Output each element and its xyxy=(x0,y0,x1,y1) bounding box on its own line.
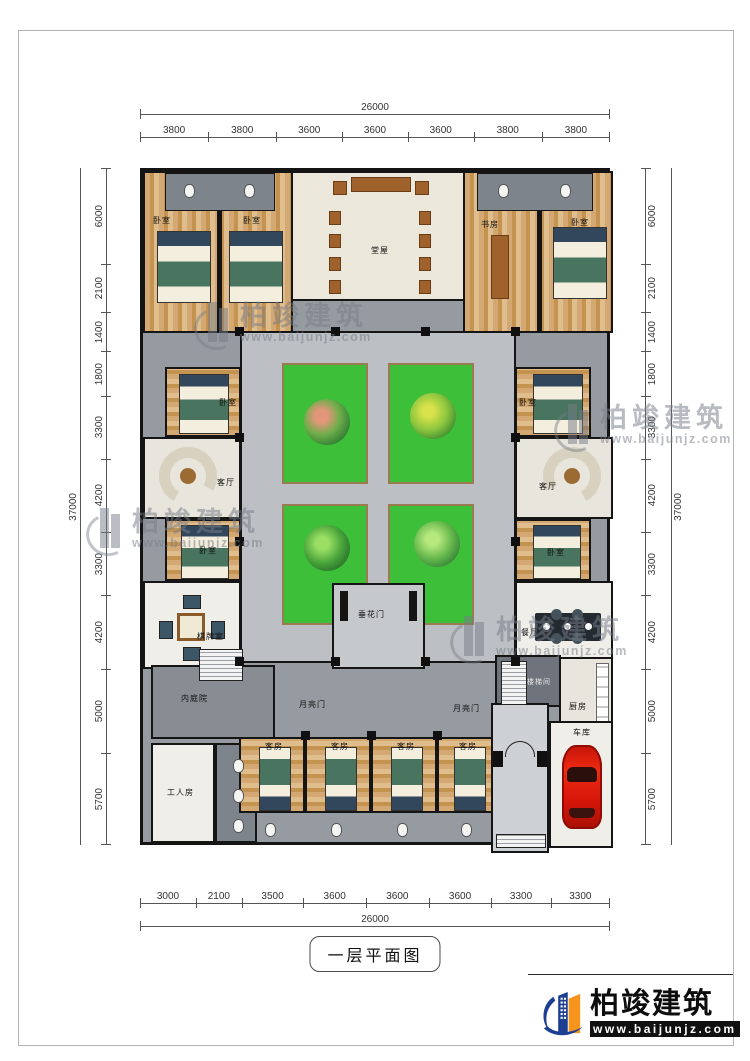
room-guest-3: 客房 xyxy=(371,737,437,813)
room-label: 月亮门 xyxy=(453,703,480,714)
dimension-bottom: 3000 2100 3500 3600 3600 3600 3300 3300 … xyxy=(140,886,610,927)
dim-segment: 5700 xyxy=(645,753,671,845)
dim-segment: 3300 xyxy=(81,532,107,595)
column xyxy=(331,657,340,666)
room-label: 卧室 xyxy=(571,217,589,228)
column xyxy=(421,657,430,666)
toilet-icon xyxy=(244,184,255,198)
floor-plan-sheet: 26000 3800 3800 3600 3600 3600 3800 3800… xyxy=(0,0,750,1061)
flower-gate: 垂花门 xyxy=(332,583,425,669)
dim-segment: 4200 xyxy=(81,459,107,533)
dim-top-total: 26000 xyxy=(140,97,610,115)
room-label: 楼梯间 xyxy=(527,677,551,687)
bed-icon xyxy=(325,747,357,811)
room-label: 卧室 xyxy=(219,397,237,408)
dim-segment: 3300 xyxy=(491,886,550,903)
dim-bottom-segments: 3000 2100 3500 3600 3600 3600 3300 3300 xyxy=(140,886,610,904)
bathroom xyxy=(165,173,275,211)
drawing-title: 一层平面图 xyxy=(309,936,440,972)
dim-segment: 3800 xyxy=(140,120,208,137)
bed-icon xyxy=(391,747,423,811)
room-living-left: 客厅 xyxy=(143,437,241,519)
room-label: 卧室 xyxy=(153,215,171,226)
gate-column xyxy=(340,591,348,621)
dim-segment: 1800 xyxy=(81,351,107,395)
dim-segment: 3600 xyxy=(408,120,474,137)
column xyxy=(433,731,442,740)
dim-segment: 3600 xyxy=(342,120,408,137)
chair-icon xyxy=(183,595,201,609)
room-label: 月亮门 xyxy=(299,699,326,710)
bed-icon xyxy=(553,227,607,299)
gate-column xyxy=(409,591,417,621)
room-bedrooms-top-left: 卧室 卧室 xyxy=(143,171,293,333)
dining-table-icon xyxy=(535,613,601,641)
dim-segment: 3800 xyxy=(542,120,610,137)
tree-icon xyxy=(410,393,456,439)
dim-segment: 3300 xyxy=(645,532,671,595)
toilet-icon xyxy=(331,823,342,837)
room-main-hall: 堂屋 xyxy=(291,171,465,301)
column xyxy=(301,731,310,740)
room-bedroom-left-upper: 卧室 xyxy=(165,367,241,437)
column xyxy=(235,327,244,336)
room-label: 内庭院 xyxy=(181,693,208,704)
room-label: 堂屋 xyxy=(371,245,389,256)
room-label: 卧室 xyxy=(199,545,217,556)
dim-segment: 6000 xyxy=(81,168,107,264)
room-bedroom-left-lower: 卧室 xyxy=(165,519,241,581)
dim-segment: 1800 xyxy=(645,351,671,395)
logo-brand-text: 柏竣建筑 xyxy=(590,989,740,1019)
room-label: 卧室 xyxy=(519,397,537,408)
dim-segment: 3600 xyxy=(276,120,342,137)
dimension-left: 37000 6000 2100 1400 1800 3300 4200 3300… xyxy=(58,168,107,845)
dim-segment: 3800 xyxy=(208,120,276,137)
dim-segment: 5000 xyxy=(645,669,671,753)
dim-segment: 4200 xyxy=(81,595,107,669)
logo-url-text: www.baijunjz.com xyxy=(590,1021,740,1037)
chair-row-icon xyxy=(419,211,431,294)
column xyxy=(367,731,376,740)
gate-post xyxy=(537,751,547,767)
room-bedroom-right-upper: 卧室 xyxy=(515,367,591,437)
room-label: 车库 xyxy=(573,727,591,738)
dim-segment: 6000 xyxy=(645,168,671,264)
door-leaf-icon xyxy=(519,741,535,757)
sofa-icon xyxy=(152,440,223,511)
dim-segment: 5700 xyxy=(81,753,107,845)
toilet-icon xyxy=(233,789,244,803)
toilet-icon xyxy=(498,184,509,198)
dimension-right: 6000 2100 1400 1800 3300 4200 3300 4200 … xyxy=(645,168,694,845)
room-label: 卧室 xyxy=(243,215,261,226)
floor-plan: 卧室 卧室 堂屋 书房 卧室 卧室 xyxy=(140,168,610,845)
gate-post xyxy=(493,751,503,767)
dim-bottom-total: 26000 xyxy=(140,909,610,927)
room-guest-1: 客房 xyxy=(239,737,305,813)
toilet-icon xyxy=(233,759,244,773)
entry-steps-icon xyxy=(496,834,546,848)
column xyxy=(511,327,520,336)
dim-segment: 3600 xyxy=(366,886,429,903)
dim-right-total: 37000 xyxy=(671,168,694,845)
wall xyxy=(537,211,542,333)
tree-icon xyxy=(304,399,350,445)
room-label: 客厅 xyxy=(539,481,557,492)
altar-table-icon xyxy=(351,177,411,192)
room-garage: 车库 xyxy=(549,721,613,848)
room-label: 厨房 xyxy=(569,701,587,712)
dim-segment: 3600 xyxy=(429,886,492,903)
dim-segment: 5000 xyxy=(81,669,107,753)
dim-left-segments: 6000 2100 1400 1800 3300 4200 3300 4200 … xyxy=(81,168,107,845)
bed-icon xyxy=(157,231,211,303)
dim-segment: 1400 xyxy=(645,312,671,351)
toilet-icon xyxy=(184,184,195,198)
room-stairwell: 楼梯间 xyxy=(495,655,561,707)
sofa-icon xyxy=(536,440,607,511)
dim-right-segments: 6000 2100 1400 1800 3300 4200 3300 4200 … xyxy=(645,168,671,845)
bed-icon xyxy=(259,747,291,811)
column xyxy=(235,657,244,666)
room-worker: 工人房 xyxy=(151,743,215,843)
logo-mark-icon xyxy=(540,988,584,1038)
room-label: 工人房 xyxy=(167,787,194,798)
bed-icon xyxy=(229,231,283,303)
toilet-icon xyxy=(461,823,472,837)
bathroom xyxy=(477,173,593,211)
toilet-icon xyxy=(265,823,276,837)
room-living-right: 客厅 xyxy=(515,437,613,519)
room-label: 客房 xyxy=(331,741,349,752)
chair-row-icon xyxy=(329,211,341,294)
dim-top-segments: 3800 3800 3600 3600 3600 3800 3800 xyxy=(140,120,610,138)
room-label: 餐厅 xyxy=(521,627,539,638)
chair-icon xyxy=(415,181,429,195)
dim-segment: 1400 xyxy=(81,312,107,351)
column xyxy=(511,657,520,666)
brand-logo: 柏竣建筑 www.baijunjz.com xyxy=(540,988,740,1038)
room-label: 棋牌室 xyxy=(197,631,224,642)
toilet-icon xyxy=(560,184,571,198)
dim-segment: 4200 xyxy=(645,459,671,533)
room-label: 垂花门 xyxy=(358,609,385,620)
chair-icon xyxy=(333,181,347,195)
dim-left-total: 37000 xyxy=(58,168,81,845)
room-label: 客房 xyxy=(397,741,415,752)
logo-divider xyxy=(528,974,733,975)
dim-segment: 3300 xyxy=(645,396,671,459)
room-guest-2: 客房 xyxy=(305,737,371,813)
dim-segment: 3500 xyxy=(242,886,304,903)
column xyxy=(421,327,430,336)
room-study-bedroom-top-right: 书房 卧室 xyxy=(463,171,613,333)
room-label: 客房 xyxy=(265,741,283,752)
room-label: 客厅 xyxy=(217,477,235,488)
dimension-top: 26000 3800 3800 3600 3600 3600 3800 3800 xyxy=(140,97,610,138)
room-label: 书房 xyxy=(481,219,499,230)
dim-segment: 2100 xyxy=(645,264,671,312)
dim-segment: 2100 xyxy=(196,886,242,903)
dim-segment: 4200 xyxy=(645,595,671,669)
dim-segment: 3600 xyxy=(303,886,366,903)
room-label: 客房 xyxy=(459,741,477,752)
column xyxy=(511,433,520,442)
column xyxy=(235,433,244,442)
room-guest-4: 客房 xyxy=(437,737,497,813)
chair-icon xyxy=(159,621,173,639)
dim-segment: 3800 xyxy=(474,120,542,137)
dim-segment: 3000 xyxy=(140,886,196,903)
room-label: 卧室 xyxy=(547,547,565,558)
column xyxy=(235,537,244,546)
dim-segment: 3300 xyxy=(551,886,610,903)
bed-icon xyxy=(533,374,583,434)
tree-icon xyxy=(414,521,460,567)
room-bedroom-right-lower: 卧室 xyxy=(515,519,591,581)
desk-icon xyxy=(491,235,509,299)
stairs-icon xyxy=(501,661,527,705)
column xyxy=(331,327,340,336)
dim-segment: 2100 xyxy=(81,264,107,312)
car-icon xyxy=(562,745,602,829)
column xyxy=(511,537,520,546)
dim-segment: 3300 xyxy=(81,396,107,459)
toilet-icon xyxy=(397,823,408,837)
toilet-icon xyxy=(233,819,244,833)
tree-icon xyxy=(304,525,350,571)
wall xyxy=(217,211,222,333)
entrance-passage xyxy=(491,703,549,853)
bed-icon xyxy=(454,747,486,811)
